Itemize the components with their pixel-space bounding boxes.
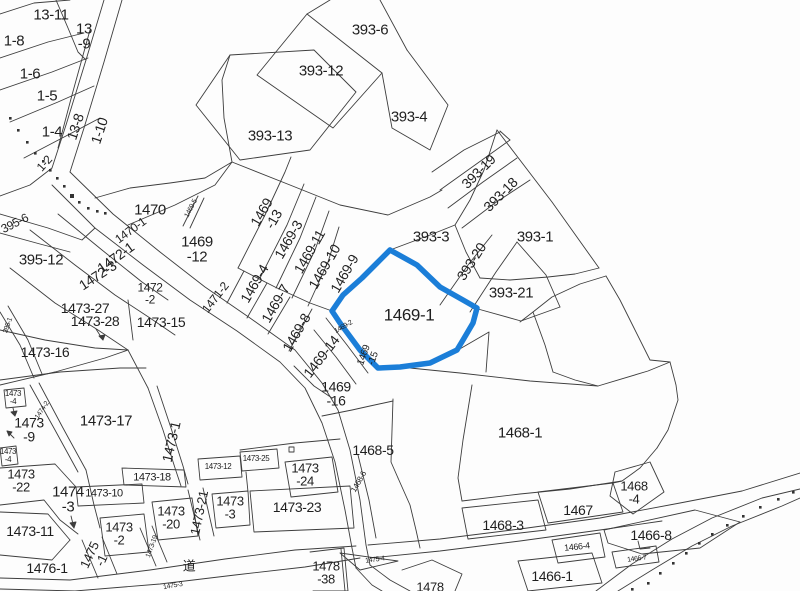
parcel-boundaries [0,0,800,591]
map-canvas[interactable]: 13-1113 -91-81-61-51-413-81-101-2393-639… [0,0,800,591]
highlighted-parcel-outline[interactable] [332,250,477,368]
survey-point-dots [9,117,795,591]
